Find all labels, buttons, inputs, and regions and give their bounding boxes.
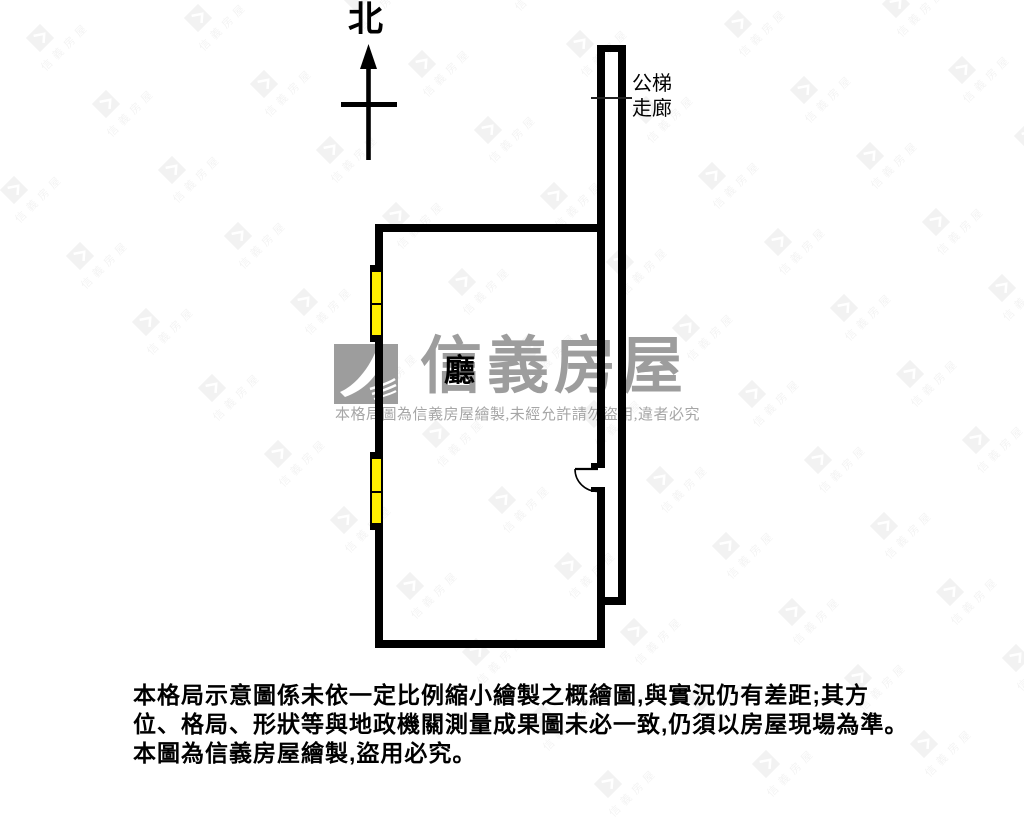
wall-room-top	[375, 224, 605, 232]
corridor-label-line2: 走廊	[632, 99, 672, 119]
wall-corridor-right	[618, 45, 626, 605]
north-arrow-icon	[334, 40, 404, 162]
wall-room-right-upper	[597, 45, 605, 464]
disclaimer-text: 本格局示意圖係未依一定比例縮小繪製之概繪圖,與實況仍有差距;其方 位、格局、形狀…	[133, 681, 993, 768]
disclaimer-line-1: 本格局示意圖係未依一定比例縮小繪製之概繪圖,與實況仍有差距;其方	[133, 681, 993, 710]
disclaimer-line-3: 本圖為信義房屋繪製,盜用必究。	[133, 739, 993, 768]
wall-corridor-top-cap	[597, 45, 626, 52]
background-logo-diamond-icon	[592, 768, 623, 799]
window-2	[370, 457, 383, 525]
corridor-label-line1: 公梯	[632, 74, 672, 94]
window-2-divider	[372, 491, 381, 493]
background-brand-text: 信義房屋	[605, 764, 662, 821]
floor-plan: 北 公梯 走廊 廳	[0, 0, 1024, 768]
door-swing-icon	[570, 462, 610, 498]
window-1	[370, 270, 383, 337]
window-2-bottom-cap	[370, 524, 383, 530]
corridor-leader-line	[591, 97, 632, 99]
north-label: 北	[348, 2, 383, 37]
room-label: 廳	[444, 355, 475, 386]
background-watermark-tile: 信義房屋	[597, 773, 687, 833]
wall-room-bottom	[375, 640, 605, 648]
window-1-divider	[372, 303, 381, 305]
wall-room-right-lower	[597, 491, 605, 648]
window-1-bottom-cap	[370, 336, 383, 342]
disclaimer-line-2: 位、格局、形狀等與地政機關測量成果圖未必一致,仍須以房屋現場為準。	[133, 710, 993, 739]
wall-corridor-bottom-cap	[605, 597, 626, 605]
